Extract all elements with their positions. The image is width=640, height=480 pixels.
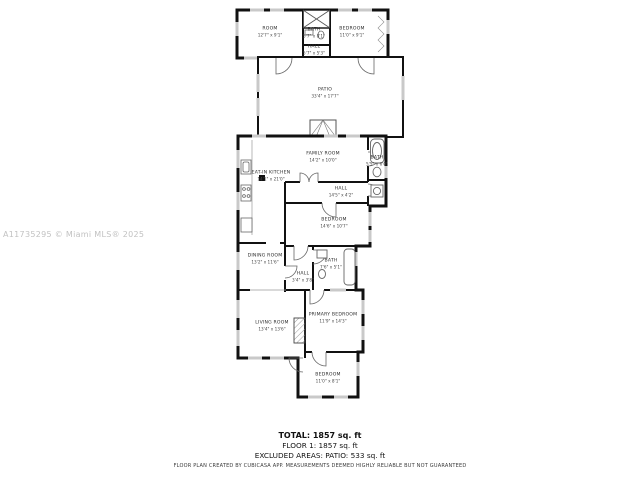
room-label-patio: PATIO33'4" x 17'7" xyxy=(311,87,338,98)
room-label-bedroom-middle: BEDROOM14'6" x 10'7" xyxy=(320,217,347,228)
room-label-eat-in-kitchen: EAT-IN KITCHEN14'1" x 21'0" xyxy=(252,170,291,181)
room-label-primary-bedroom: PRIMARY BEDROOM11'9" x 14'3" xyxy=(309,312,358,323)
toilet-icon xyxy=(373,167,381,177)
bathtub-icon xyxy=(344,249,355,285)
room-label-dining-room: DINING ROOM13'2" x 11'6" xyxy=(248,253,283,264)
stove-icon xyxy=(241,185,251,201)
room-label-hall-small: HALL3'4" x 3'8" xyxy=(292,271,314,282)
steps-icon xyxy=(310,120,336,137)
stairs-icon xyxy=(303,10,330,28)
room-label-family-room: FAMILY ROOM14'2" x 10'0" xyxy=(306,151,339,162)
total-area: TOTAL: 1857 sq. ft xyxy=(0,431,640,440)
washer-icon xyxy=(371,185,383,197)
toilet-icon xyxy=(319,270,326,279)
disclaimer: FLOOR PLAN CREATED BY CUBICASA APP. MEAS… xyxy=(0,463,640,469)
room-label-hall-main: HALL14'5" x 4'2" xyxy=(329,186,354,197)
fridge-icon xyxy=(241,218,252,232)
room-label-hall-top: HALL5'7" x 5'3" xyxy=(303,44,325,55)
area-summary: TOTAL: 1857 sq. ft FLOOR 1: 1857 sq. ft … xyxy=(0,431,640,461)
room-label-bath-middle: BATH7'6" x 5'1" xyxy=(320,258,342,269)
room-label-bedroom-bottom: BEDROOM11'0" x 8'1" xyxy=(315,372,340,383)
room-label-bedroom-top: BEDROOM11'0" x 9'1" xyxy=(339,26,364,37)
floorplan-page: A11735295 © Miami MLS® 2025 xyxy=(0,0,640,480)
excluded-area: EXCLUDED AREAS: PATIO: 533 sq. ft xyxy=(0,451,640,460)
floor1-area: FLOOR 1: 1857 sq. ft xyxy=(0,441,640,450)
fireplace-icon xyxy=(294,318,305,343)
room-label-bath-top: BATH5'7" x 8'1" xyxy=(303,27,325,38)
floorplan-drawing xyxy=(0,0,640,480)
room-label-bath-upper: BATH5'5" x 6'0" xyxy=(366,155,388,166)
room-label-living-room: LIVING ROOM13'4" x 13'6" xyxy=(255,320,288,331)
mls-watermark: A11735295 © Miami MLS® 2025 xyxy=(3,230,144,239)
sink-icon xyxy=(317,250,327,258)
room-label-room: ROOM12'7" x 9'1" xyxy=(258,26,283,37)
